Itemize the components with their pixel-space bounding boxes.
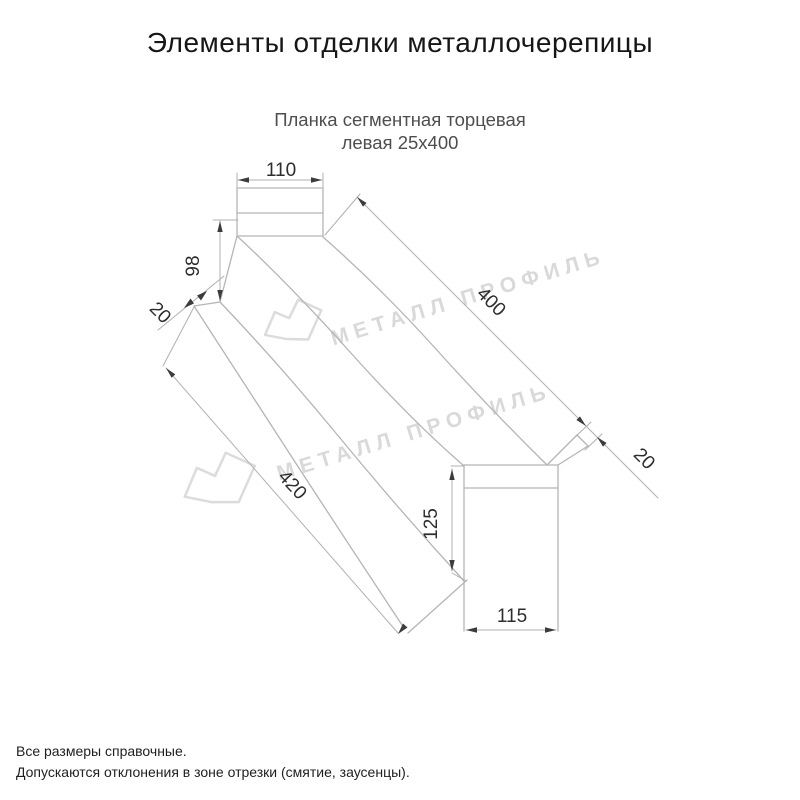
arrow-down-left-icon xyxy=(184,299,194,309)
arrow-up-right-icon xyxy=(197,291,207,301)
watermark-upper: МЕТАЛЛ ПРОФИЛЬ xyxy=(258,245,608,352)
brand-logo-icon xyxy=(176,446,264,517)
watermark-brand-text: МЕТАЛЛ ПРОФИЛЬ xyxy=(274,380,554,486)
dimension-top-width: 110 xyxy=(237,160,323,187)
far-end-flange xyxy=(237,188,323,236)
watermark-lower: МЕТАЛЛ ПРОФИЛЬ xyxy=(176,380,554,517)
watermark-brand-text: МЕТАЛЛ ПРОФИЛЬ xyxy=(328,245,608,351)
arrow-left-icon xyxy=(466,627,477,632)
arrow-up-icon xyxy=(449,469,454,480)
dimension-far-end-height: 98 xyxy=(183,220,238,301)
dimension-right-fold: 20 xyxy=(574,422,659,474)
dim-label-115: 115 xyxy=(497,606,527,627)
product-drawing-page: Элементы отделки металлочерепицы Планка … xyxy=(0,0,800,800)
footer-note-1: Все размеры справочные. xyxy=(16,741,410,762)
arrow-right-icon xyxy=(545,627,556,632)
dim-label-125: 125 xyxy=(421,508,442,540)
near-fold-end-edge xyxy=(577,435,588,446)
near-fold-upper-edge xyxy=(547,435,577,465)
arrow-left-icon xyxy=(238,177,249,182)
profile-outline xyxy=(194,188,588,633)
dim-label-110: 110 xyxy=(266,160,296,181)
arrow-right-icon xyxy=(311,177,322,182)
dim-label-20-left: 20 xyxy=(145,298,175,328)
footer-note-2: Допускаются отклонения в зоне отрезки (с… xyxy=(16,762,410,783)
bottom-tip-edge xyxy=(408,580,467,633)
far-end-face-edge xyxy=(220,236,237,302)
dim-label-20-right: 20 xyxy=(629,444,659,474)
dimension-end-height: 125 xyxy=(421,466,466,581)
dim-label-98: 98 xyxy=(183,255,204,276)
brand-logo-icon xyxy=(258,294,328,351)
technical-drawing: МЕТАЛЛ ПРОФИЛЬ МЕТАЛЛ ПРОФИЛЬ xyxy=(0,0,800,800)
left-end-hem-edge xyxy=(194,302,220,306)
arrow-down-left-icon xyxy=(398,624,408,635)
arrow-up-icon xyxy=(217,221,222,232)
footer-notes: Все размеры справочные. Допускаются откл… xyxy=(16,741,410,783)
dimension-end-width: 115 xyxy=(466,606,556,633)
